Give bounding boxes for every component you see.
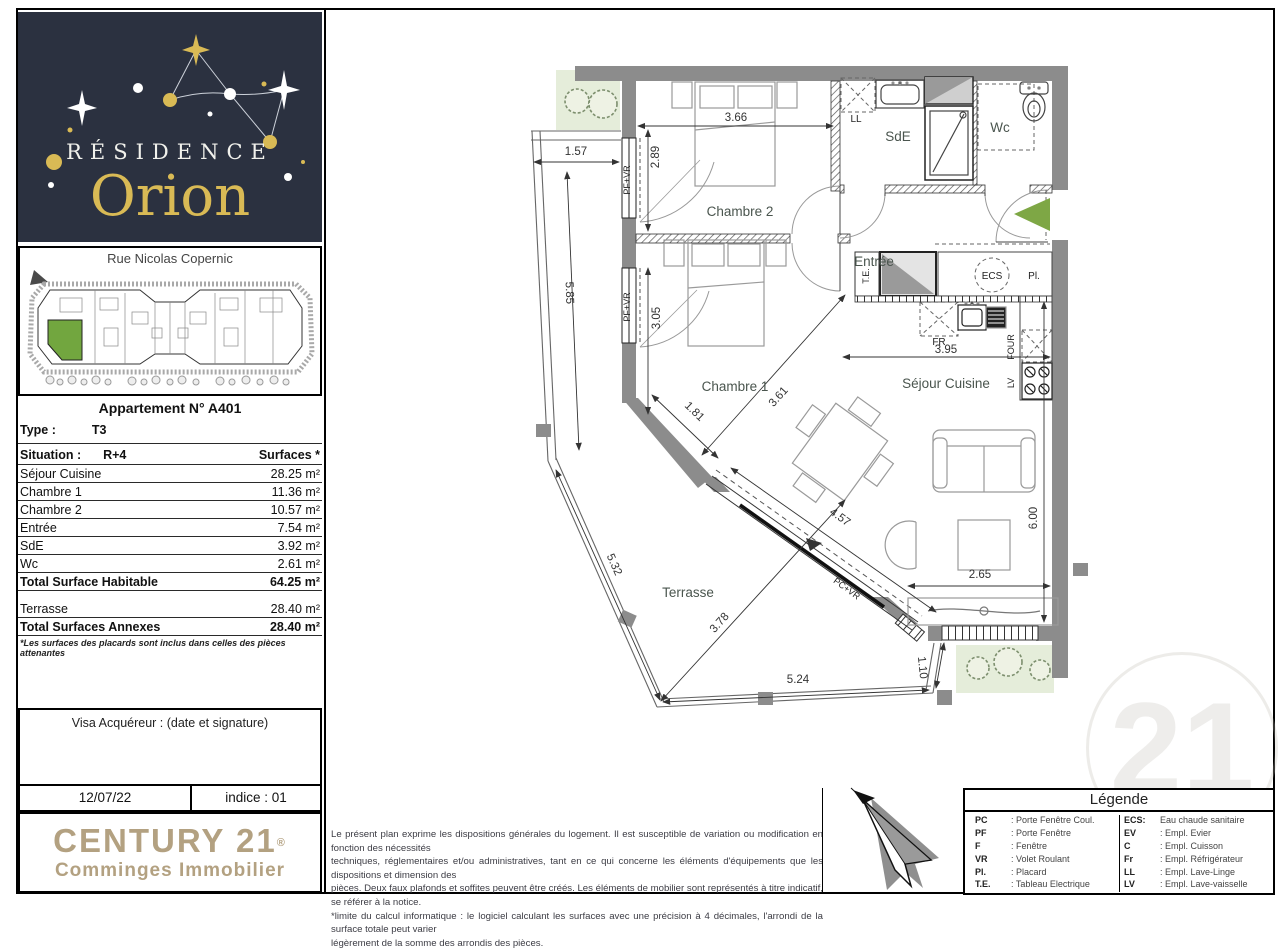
dim-chambre1-a: 1.81 [682, 400, 706, 424]
logo-residence-text: RÉSIDENCE [18, 140, 322, 164]
registered-mark: ® [277, 837, 287, 849]
legend-row: LL: Empl. Lave-Linge [1120, 867, 1269, 877]
legend-row: Fr: Empl. Réfrigérateur [1120, 854, 1269, 864]
window-pf-vr-1 [622, 138, 714, 222]
room-label-chambre2: Chambre 2 [707, 204, 774, 219]
legend-title: Légende [965, 790, 1273, 812]
walls [575, 66, 1068, 705]
visa-title: Visa Acquéreur : (date et signature) [20, 716, 320, 730]
floor-plan-svg: 1.57 5.85 3.66 2.89 3.05 1.81 3.61 3.95 … [520, 46, 1090, 746]
disclaimer-text: Le présent plan exprime les dispositions… [331, 828, 823, 950]
visa-box: Visa Acquéreur : (date et signature) 12/… [18, 708, 322, 812]
legend-row: PC: Porte Fenêtre Coul. [971, 815, 1119, 825]
furniture [664, 80, 1058, 625]
surfaces-table: Appartement N° A401 Type : T3 Situation … [18, 400, 322, 658]
table-row: Chambre 111.36 m² [18, 483, 322, 501]
dim-slider: 4.57 [827, 506, 852, 529]
legend-row: ECS:Eau chaude sanitaire [1120, 815, 1269, 825]
legend: Légende PC: Porte Fenêtre Coul. PF: Port… [963, 788, 1275, 895]
visa-date: 12/07/22 [20, 786, 192, 810]
bush-icon [967, 657, 989, 679]
legend-row: LV: Empl. Lave-vaisselle [1120, 879, 1269, 889]
dim-terrace-bottom: 5.24 [787, 674, 810, 686]
dim-terrace-right: 1.10 [915, 656, 929, 680]
agency-brand: CENTURY 21® [20, 822, 320, 860]
table-row: Chambre 210.57 m² [18, 501, 322, 519]
type-value: T3 [92, 423, 107, 437]
room-label-sejour: Séjour Cuisine [902, 376, 990, 391]
tag-pfvr-2: PF+VR [622, 292, 632, 322]
tag-ecs: ECS [982, 271, 1003, 282]
visa-indice: indice : 01 [192, 786, 320, 810]
dim-chambre1-height: 3.05 [651, 307, 663, 329]
dim-chambre2-width: 3.66 [725, 112, 747, 124]
dim-sejour-height: 6.00 [1028, 507, 1040, 529]
window-pf-vr-2 [622, 268, 709, 347]
tag-lv: LV [1006, 378, 1016, 388]
tag-pfvr-1: PF+VR [622, 165, 632, 195]
tag-four: FOUR [1006, 334, 1016, 360]
total-annexes-row: Total Surfaces Annexes28.40 m² [18, 618, 322, 636]
site-plan-drawing [20, 268, 320, 394]
terrasse-row: Terrasse28.40 m² [18, 600, 322, 618]
dimension-lines [534, 126, 1050, 702]
situation-value: R+4 [103, 448, 126, 462]
dim-terrace-left: 5.85 [563, 281, 576, 304]
legend-row: Pl.: Placard [971, 867, 1119, 877]
tag-ll: LL [850, 114, 862, 125]
left-column-divider [324, 8, 326, 894]
legend-row: F: Fenêtre [971, 841, 1119, 851]
dim-chambre2-height: 2.89 [650, 146, 662, 168]
type-label: Type : [20, 423, 56, 437]
table-row: Wc2.61 m² [18, 555, 322, 573]
tag-pl: Pl. [1028, 271, 1040, 282]
residence-logo: RÉSIDENCE Orion [18, 12, 322, 242]
entrance-arrow-icon [1014, 198, 1050, 231]
north-arrow-divider [822, 788, 823, 894]
legend-row: EV: Empl. Evier [1120, 828, 1269, 838]
bush-icon [1030, 660, 1050, 680]
table-row: Entrée7.54 m² [18, 519, 322, 537]
logo-orion-text: Orion [18, 164, 322, 229]
agency-subtitle: Comminges Immobilier [20, 860, 320, 882]
legend-row: C: Empl. Cuisson [1120, 841, 1269, 851]
room-label-chambre1: Chambre 1 [702, 379, 769, 394]
bush-icon [589, 90, 617, 118]
room-label-sde: SdE [885, 129, 911, 144]
legend-row: PF: Porte Fenêtre [971, 828, 1119, 838]
table-footnote: *Les surfaces des placards sont inclus d… [18, 636, 322, 658]
dim-chambre1-diag: 3.61 [767, 385, 791, 410]
site-plan: Rue Nicolas Copernic [18, 246, 322, 396]
room-label-wc: Wc [990, 120, 1010, 135]
apartment-title: Appartement N° A401 [18, 400, 322, 416]
total-habitable-row: Total Surface Habitable64.25 m² [18, 573, 322, 591]
floor-plan: 1.57 5.85 3.66 2.89 3.05 1.81 3.61 3.95 … [520, 46, 1090, 751]
bush-icon [994, 648, 1022, 676]
agency-logo-box: CENTURY 21® Comminges Immobilier [18, 812, 322, 893]
table-row: Séjour Cuisine28.25 m² [18, 465, 322, 483]
bush-icon [565, 89, 589, 113]
dim-terrace-top: 1.57 [565, 146, 587, 158]
street-label: Rue Nicolas Copernic [20, 251, 320, 266]
surfaces-header: Surfaces * [259, 448, 320, 462]
room-label-entree: Entrée [854, 254, 894, 269]
dim-terrace-diag: 3.78 [708, 611, 732, 636]
legend-row: T.E.: Tableau Electrique [971, 879, 1119, 889]
tag-fr: FR [932, 337, 945, 348]
situation-label: Situation : [20, 448, 81, 462]
legend-row: VR: Volet Roulant [971, 854, 1119, 864]
room-label-terrasse: Terrasse [662, 585, 714, 600]
plan-sheet: 21 [0, 0, 1282, 902]
tag-te: T.E. [861, 268, 871, 284]
window-sills [895, 614, 1038, 641]
table-row: SdE3.92 m² [18, 537, 322, 555]
dim-sejour-width: 2.65 [969, 569, 991, 581]
north-arrow-icon [835, 782, 957, 896]
